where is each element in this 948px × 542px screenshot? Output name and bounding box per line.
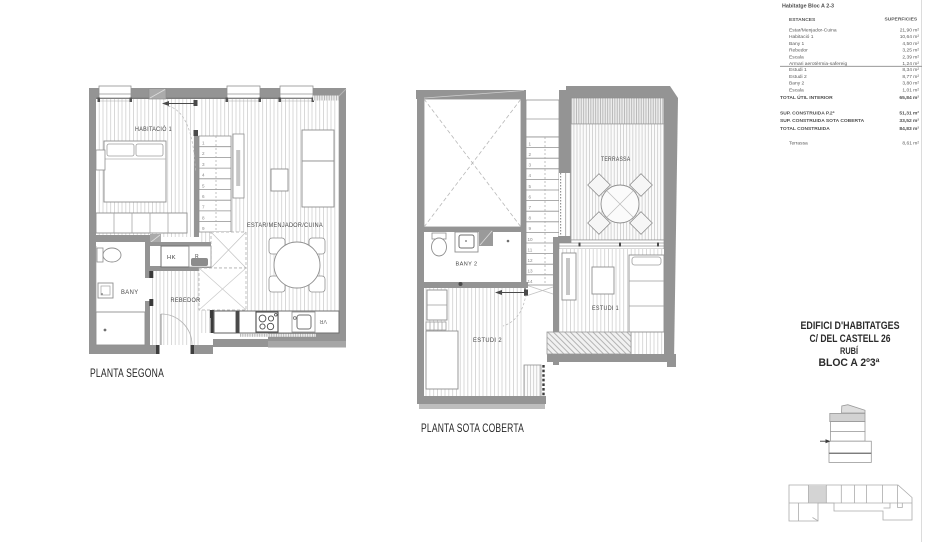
svg-text:REBEDOR: REBEDOR <box>171 298 201 304</box>
svg-text:VR: VR <box>319 318 327 324</box>
svg-text:65,84 m²: 65,84 m² <box>899 95 919 101</box>
svg-text:2,39 m²: 2,39 m² <box>902 54 919 60</box>
svg-text:4,50 m²: 4,50 m² <box>902 41 919 47</box>
svg-text:Habitatge Bloc A 2-3: Habitatge Bloc A 2-3 <box>782 4 834 10</box>
svg-text:Escala: Escala <box>789 87 804 93</box>
svg-text:BANY 2: BANY 2 <box>456 262 478 268</box>
svg-text:Rebedor: Rebedor <box>789 48 808 54</box>
svg-text:ESTANCES: ESTANCES <box>789 17 816 23</box>
svg-text:4: 4 <box>202 173 205 178</box>
svg-text:5: 5 <box>529 184 532 189</box>
svg-text:9: 9 <box>202 226 205 231</box>
svg-text:Estar/Menjador-Cuina: Estar/Menjador-Cuina <box>789 28 837 34</box>
svg-text:PLANTA SEGONA: PLANTA SEGONA <box>90 366 164 380</box>
svg-text:HK: HK <box>167 255 176 261</box>
svg-text:C/ DEL CASTELL 26: C/ DEL CASTELL 26 <box>810 333 891 345</box>
svg-text:HABITACIÓ 1: HABITACIÓ 1 <box>135 126 172 133</box>
svg-text:ESTAR/MENJADOR/CUINA: ESTAR/MENJADOR/CUINA <box>247 222 323 229</box>
svg-text:Estudi 2: Estudi 2 <box>789 74 807 80</box>
svg-text:SUP. CONSTRUIDA SOTA COBERTA: SUP. CONSTRUIDA SOTA COBERTA <box>780 118 865 124</box>
svg-text:3: 3 <box>202 162 205 167</box>
svg-text:13: 13 <box>528 269 534 274</box>
svg-text:1: 1 <box>529 141 532 146</box>
svg-text:1: 1 <box>202 141 205 146</box>
svg-text:33,52 m²: 33,52 m² <box>899 118 919 124</box>
svg-text:Habitació 1: Habitació 1 <box>789 34 814 40</box>
svg-text:TOTAL CONSTRUIDA: TOTAL CONSTRUIDA <box>780 126 830 132</box>
svg-text:84,83 m²: 84,83 m² <box>899 126 919 132</box>
svg-text:1,01 m²: 1,01 m² <box>902 87 919 93</box>
svg-text:Estudi 1: Estudi 1 <box>789 67 807 73</box>
svg-text:2: 2 <box>529 152 532 157</box>
svg-text:2: 2 <box>202 151 205 156</box>
svg-text:RUBÍ: RUBÍ <box>840 345 858 357</box>
svg-text:8,77 m²: 8,77 m² <box>902 74 919 80</box>
svg-text:4: 4 <box>529 173 532 178</box>
svg-text:Bany 1: Bany 1 <box>789 41 805 47</box>
svg-text:8: 8 <box>529 216 532 221</box>
svg-text:EDIFICI D'HABITATGES: EDIFICI D'HABITATGES <box>801 320 900 332</box>
svg-text:5: 5 <box>202 183 205 188</box>
svg-text:3: 3 <box>529 163 532 168</box>
svg-text:BLOC A 2º3ª: BLOC A 2º3ª <box>819 357 881 369</box>
svg-text:SUP. CONSTRUIDA P.2ª: SUP. CONSTRUIDA P.2ª <box>780 111 835 117</box>
svg-text:3,80 m²: 3,80 m² <box>902 81 919 87</box>
svg-text:ESTUDI 1: ESTUDI 1 <box>592 306 619 312</box>
svg-text:11: 11 <box>528 247 533 252</box>
svg-text:51,31 m²: 51,31 m² <box>899 111 919 117</box>
svg-text:8: 8 <box>202 215 205 220</box>
svg-text:Escala: Escala <box>789 54 804 60</box>
svg-text:Bany 2: Bany 2 <box>789 81 805 87</box>
svg-text:PLANTA SOTA COBERTA: PLANTA SOTA COBERTA <box>421 421 524 435</box>
svg-text:6: 6 <box>529 194 532 199</box>
svg-text:8,34 m²: 8,34 m² <box>902 67 919 73</box>
svg-text:9: 9 <box>529 226 532 231</box>
svg-text:TOTAL ÚTIL INTERIOR: TOTAL ÚTIL INTERIOR <box>780 94 833 101</box>
svg-text:BANY: BANY <box>121 290 139 296</box>
svg-text:6: 6 <box>202 194 205 199</box>
svg-text:14: 14 <box>528 279 534 284</box>
svg-text:8,61 m²: 8,61 m² <box>902 141 919 147</box>
svg-text:7: 7 <box>202 205 205 210</box>
svg-text:12: 12 <box>528 258 534 263</box>
svg-text:7: 7 <box>529 205 532 210</box>
svg-text:10: 10 <box>528 237 534 242</box>
svg-text:Terrassa: Terrassa <box>789 141 808 147</box>
svg-text:TERRASSA: TERRASSA <box>601 156 631 163</box>
svg-text:3,25 m²: 3,25 m² <box>902 48 919 54</box>
svg-text:21,90 m²: 21,90 m² <box>900 28 920 34</box>
svg-text:SUPERFICIES: SUPERFICIES <box>885 17 918 23</box>
svg-text:ESTUDI 2: ESTUDI 2 <box>473 338 502 344</box>
svg-text:10,64 m²: 10,64 m² <box>900 34 920 40</box>
